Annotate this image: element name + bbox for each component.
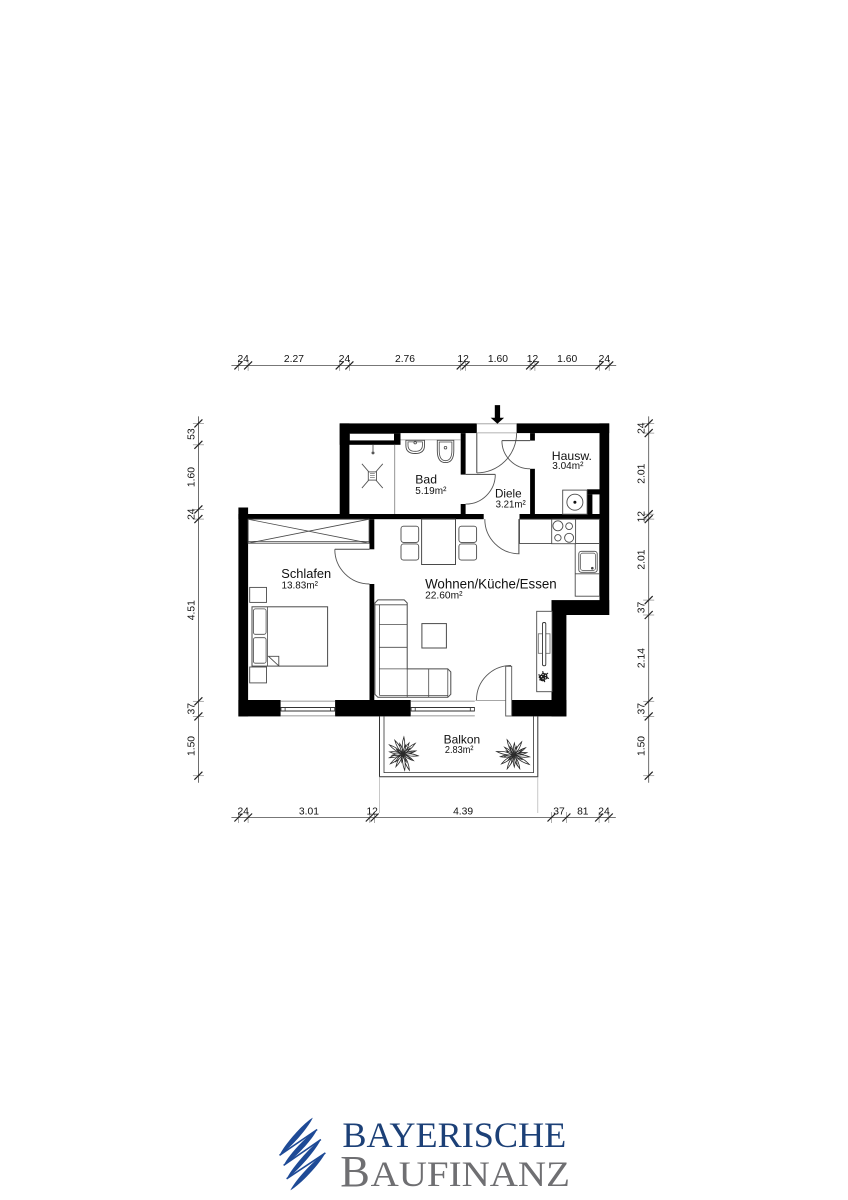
svg-text:37: 37 xyxy=(636,703,647,715)
svg-text:24: 24 xyxy=(187,508,198,520)
svg-text:2.14: 2.14 xyxy=(636,648,647,668)
svg-text:12: 12 xyxy=(366,806,378,817)
svg-text:2.83m²: 2.83m² xyxy=(445,745,474,756)
svg-text:BAYERISCHE: BAYERISCHE xyxy=(342,1115,566,1155)
svg-text:22.60m²: 22.60m² xyxy=(425,590,463,601)
svg-text:37: 37 xyxy=(553,806,565,817)
svg-text:24: 24 xyxy=(599,354,611,365)
svg-text:1.60: 1.60 xyxy=(187,467,198,487)
svg-text:2.76: 2.76 xyxy=(395,354,415,365)
svg-text:24: 24 xyxy=(237,354,249,365)
svg-text:12: 12 xyxy=(527,354,539,365)
svg-text:12: 12 xyxy=(457,354,469,365)
svg-text:37: 37 xyxy=(187,703,198,715)
svg-text:3.21m²: 3.21m² xyxy=(496,500,527,511)
svg-text:3.04m²: 3.04m² xyxy=(552,461,584,472)
svg-text:2.01: 2.01 xyxy=(636,549,647,569)
svg-text:B: B xyxy=(340,1146,370,1196)
svg-text:Bad: Bad xyxy=(415,473,437,487)
svg-text:37: 37 xyxy=(636,602,647,614)
svg-text:24: 24 xyxy=(636,422,647,434)
svg-text:24: 24 xyxy=(598,806,610,817)
svg-text:24: 24 xyxy=(339,354,351,365)
svg-text:2.01: 2.01 xyxy=(636,463,647,483)
svg-text:1.50: 1.50 xyxy=(636,736,647,756)
svg-text:Wohnen/Küche/Essen: Wohnen/Küche/Essen xyxy=(425,576,557,591)
svg-text:13.83m²: 13.83m² xyxy=(282,580,319,591)
svg-text:1.60: 1.60 xyxy=(557,354,577,365)
svg-text:4.39: 4.39 xyxy=(453,806,473,817)
svg-text:Diele: Diele xyxy=(495,486,522,500)
svg-text:53: 53 xyxy=(187,428,198,440)
svg-text:5.19m²: 5.19m² xyxy=(415,486,447,497)
svg-text:AUFINANZ: AUFINANZ xyxy=(371,1154,570,1194)
svg-text:1.60: 1.60 xyxy=(488,354,508,365)
svg-text:2.27: 2.27 xyxy=(284,354,304,365)
svg-text:1.50: 1.50 xyxy=(187,736,198,756)
svg-text:3.01: 3.01 xyxy=(299,806,319,817)
svg-text:24: 24 xyxy=(237,806,249,817)
svg-text:12: 12 xyxy=(636,511,647,523)
svg-text:4.51: 4.51 xyxy=(187,600,198,620)
svg-text:Schlafen: Schlafen xyxy=(281,566,331,581)
svg-text:81: 81 xyxy=(577,806,589,817)
